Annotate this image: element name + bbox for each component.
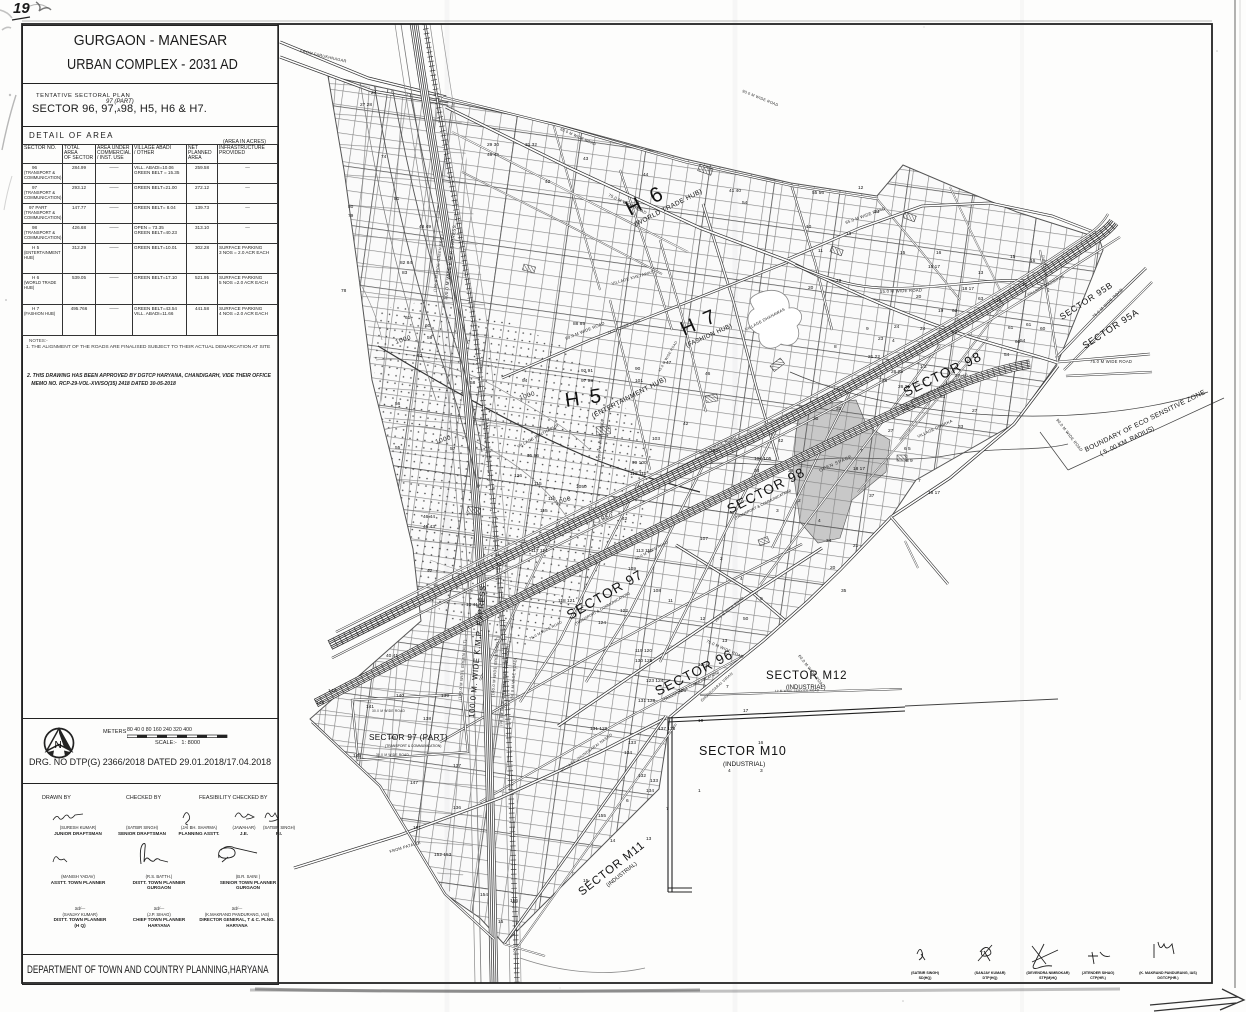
svg-text:151: 151 (413, 825, 421, 831)
svg-text:32: 32 (836, 406, 842, 412)
svg-text:3: 3 (776, 508, 779, 514)
svg-text:(DEVENDRA NIMBOKAR): (DEVENDRA NIMBOKAR) (1026, 971, 1070, 975)
svg-text:131 128: 131 128 (638, 698, 656, 704)
svg-text:DTP(HQ): DTP(HQ) (983, 976, 999, 980)
svg-text:118 121: 118 121 (558, 598, 575, 604)
svg-text:31: 31 (903, 406, 909, 412)
svg-text:54: 54 (742, 200, 748, 206)
svg-text:20: 20 (808, 285, 814, 291)
svg-text:23: 23 (878, 336, 884, 342)
svg-text:15: 15 (1010, 254, 1016, 260)
svg-text:4: 4 (818, 518, 821, 524)
svg-text:95 96: 95 96 (527, 453, 539, 459)
svg-text:17: 17 (743, 708, 749, 714)
svg-text:55: 55 (395, 445, 401, 451)
svg-text:35: 35 (841, 588, 847, 594)
svg-text:CTP(HR.): CTP(HR.) (1090, 976, 1107, 980)
svg-text:29 30: 29 30 (487, 142, 499, 148)
svg-text:13: 13 (846, 231, 852, 237)
svg-text:116: 116 (548, 496, 556, 502)
svg-text:6 5: 6 5 (904, 446, 911, 452)
svg-text:145: 145 (353, 753, 361, 759)
svg-text:143: 143 (316, 700, 324, 706)
svg-text:SECTOR M10: SECTOR M10 (699, 744, 787, 758)
svg-text:48 49: 48 49 (419, 224, 431, 230)
svg-text:16: 16 (758, 740, 764, 746)
svg-text:15: 15 (900, 250, 906, 256)
svg-text:16: 16 (936, 250, 942, 256)
svg-text:42: 42 (496, 562, 502, 568)
svg-text:10: 10 (806, 224, 812, 230)
svg-text:101: 101 (635, 378, 643, 384)
svg-text:10 41: 10 41 (466, 602, 478, 608)
svg-text:39: 39 (788, 468, 794, 474)
svg-text:18 17: 18 17 (853, 466, 865, 472)
svg-text:55 56: 55 56 (812, 190, 824, 196)
svg-text:7: 7 (726, 684, 729, 690)
svg-text:90: 90 (635, 366, 641, 372)
svg-text:12: 12 (698, 662, 704, 668)
svg-text:34: 34 (754, 468, 760, 474)
svg-text:28: 28 (882, 378, 888, 384)
svg-text:62: 62 (952, 308, 958, 314)
svg-text:147: 147 (410, 780, 418, 786)
svg-text:133: 133 (650, 778, 658, 784)
svg-text:(INDUSTRIAL): (INDUSTRIAL) (723, 761, 765, 768)
svg-text:57: 57 (450, 446, 456, 452)
svg-text:42: 42 (545, 179, 551, 185)
svg-text:1: 1 (698, 788, 701, 794)
svg-text:(SANJAY KUMAR): (SANJAY KUMAR) (975, 971, 1007, 975)
svg-text:18 17: 18 17 (928, 264, 940, 270)
svg-text:37: 37 (869, 493, 875, 499)
svg-text:80: 80 (348, 204, 354, 210)
svg-text:133: 133 (628, 740, 636, 746)
svg-text:16: 16 (1030, 258, 1036, 264)
svg-text:103: 103 (710, 448, 718, 454)
svg-text:40 41: 40 41 (386, 653, 398, 659)
svg-text:60: 60 (425, 323, 431, 329)
svg-text:7: 7 (666, 806, 669, 812)
svg-text:92 91: 92 91 (581, 368, 593, 374)
svg-text:4: 4 (892, 338, 895, 344)
svg-text:155: 155 (598, 813, 606, 819)
svg-text:46 45: 46 45 (487, 152, 499, 158)
svg-text:30.0 M WIDE ROAD: 30.0 M WIDE ROAD (376, 753, 409, 757)
svg-text:119 120: 119 120 (635, 648, 652, 654)
svg-text:27: 27 (972, 408, 978, 414)
svg-text:134: 134 (624, 750, 632, 756)
svg-text:N: N (55, 740, 62, 751)
svg-text:BOUNDARY OF ECO SENSITIVE ZONE: BOUNDARY OF ECO SENSITIVE ZONE (1084, 389, 1207, 454)
svg-text:14: 14 (874, 209, 880, 215)
svg-text:122: 122 (620, 608, 628, 614)
svg-text:42: 42 (622, 516, 628, 522)
svg-text:81: 81 (394, 196, 400, 202)
svg-text:78: 78 (341, 288, 347, 294)
svg-text:56: 56 (395, 401, 401, 407)
svg-text:34: 34 (826, 538, 832, 544)
svg-text:131 128: 131 128 (590, 726, 608, 732)
svg-text:106 105: 106 105 (754, 456, 772, 462)
svg-text:9: 9 (866, 326, 869, 332)
svg-text:61: 61 (1008, 325, 1014, 331)
svg-text:19: 19 (996, 298, 1002, 304)
svg-text:19: 19 (698, 718, 704, 724)
svg-text:8 9: 8 9 (906, 458, 913, 464)
svg-text:140: 140 (396, 693, 404, 699)
svg-text:DGTCP(HR.): DGTCP(HR.) (1157, 976, 1179, 980)
svg-text:154: 154 (480, 892, 488, 898)
svg-text:123 124: 123 124 (646, 678, 664, 684)
svg-text:27: 27 (955, 373, 961, 379)
svg-text:8: 8 (834, 344, 837, 350)
svg-text:99 100: 99 100 (632, 460, 647, 466)
svg-text:26 25: 26 25 (891, 369, 903, 375)
svg-text:STP(M)HQ: STP(M)HQ (1039, 976, 1057, 980)
svg-text:46: 46 (705, 371, 711, 377)
svg-text:88 89: 88 89 (573, 321, 585, 327)
svg-text:42: 42 (427, 568, 433, 574)
svg-text:15: 15 (583, 878, 589, 884)
svg-text:(TRANSPORT & COMMUNICATION): (TRANSPORT & COMMUNICATION) (385, 744, 441, 748)
svg-text:20: 20 (916, 294, 922, 300)
svg-text:21 22: 21 22 (868, 354, 880, 360)
svg-text:90.0 M WIDE ROAD: 90.0 M WIDE ROAD (1055, 418, 1084, 453)
svg-text:82 84: 82 84 (400, 260, 412, 266)
svg-text:50: 50 (743, 616, 749, 622)
svg-text:109: 109 (628, 566, 636, 572)
svg-text:(K. MAKRAND PANDURANG, IAS): (K. MAKRAND PANDURANG, IAS) (1139, 971, 1197, 975)
svg-text:58: 58 (470, 380, 476, 386)
svg-text:15: 15 (498, 919, 504, 925)
svg-text:137 135: 137 135 (658, 726, 676, 732)
svg-text:97 98: 97 98 (581, 378, 593, 384)
svg-text:54: 54 (1004, 352, 1010, 358)
svg-text:61: 61 (1026, 322, 1032, 328)
svg-text:4: 4 (923, 377, 926, 383)
svg-text:126: 126 (514, 473, 522, 479)
svg-text:SECTOR M12: SECTOR M12 (766, 670, 847, 682)
svg-text:117 114: 117 114 (531, 548, 548, 554)
svg-text:(JITENDER SIHAG): (JITENDER SIHAG) (1082, 971, 1115, 975)
svg-text:3: 3 (760, 768, 763, 774)
svg-text:33: 33 (958, 424, 964, 430)
svg-text:7: 7 (860, 448, 863, 454)
svg-text:138: 138 (423, 716, 431, 722)
svg-text:62: 62 (417, 353, 423, 359)
svg-text:27 28: 27 28 (360, 102, 372, 108)
svg-text:30: 30 (813, 416, 819, 422)
svg-text:6: 6 (626, 798, 629, 804)
svg-text:11: 11 (668, 598, 673, 604)
svg-text:SD(HQ): SD(HQ) (919, 976, 933, 980)
svg-text:44: 44 (643, 172, 649, 178)
svg-text:24: 24 (894, 324, 900, 330)
svg-text:62: 62 (952, 329, 958, 335)
svg-text:14: 14 (610, 838, 616, 844)
svg-text:63: 63 (978, 296, 984, 302)
svg-text:61: 61 (405, 315, 411, 321)
svg-text:7: 7 (918, 478, 921, 484)
svg-text:79: 79 (348, 213, 354, 219)
svg-text:20: 20 (830, 565, 836, 571)
svg-text:4: 4 (728, 768, 731, 774)
svg-text:12 M WIDE SERVICE ROAD: 12 M WIDE SERVICE ROAD (775, 688, 820, 693)
svg-text:103: 103 (652, 436, 660, 442)
svg-text:31 32: 31 32 (525, 142, 537, 148)
svg-text:24: 24 (920, 326, 926, 332)
svg-text:24: 24 (371, 90, 377, 96)
svg-text:SECTOR 95A: SECTOR 95A (1081, 307, 1141, 351)
svg-text:42: 42 (683, 421, 689, 427)
svg-text:1 2: 1 2 (920, 364, 927, 370)
svg-text:115: 115 (534, 481, 542, 487)
svg-text:12: 12 (858, 185, 864, 191)
svg-text:2: 2 (720, 556, 723, 562)
svg-text:21: 21 (853, 543, 859, 549)
svg-text:26 25: 26 25 (898, 384, 910, 390)
svg-text:30.0 M WIDE ROAD: 30.0 M WIDE ROAD (372, 709, 405, 713)
svg-text:83: 83 (402, 270, 408, 276)
svg-text:130 129: 130 129 (635, 658, 653, 664)
svg-text:18 17: 18 17 (962, 286, 974, 292)
svg-text:27: 27 (888, 428, 894, 434)
svg-text:(SATBIR SINGH): (SATBIR SINGH) (911, 971, 940, 975)
svg-text:13: 13 (722, 638, 728, 644)
svg-text:156: 156 (510, 898, 518, 904)
svg-text:46 44: 46 44 (423, 514, 435, 520)
svg-text:108: 108 (653, 588, 661, 594)
svg-text:2: 2 (798, 498, 801, 504)
svg-text:31: 31 (940, 394, 946, 400)
svg-text:94: 94 (522, 378, 528, 384)
svg-text:136: 136 (453, 805, 461, 811)
svg-text:107: 107 (700, 536, 708, 542)
svg-text:59: 59 (427, 335, 433, 341)
svg-text:90.0 M WIDE ROAD: 90.0 M WIDE ROAD (742, 89, 779, 107)
svg-text:124: 124 (598, 620, 606, 626)
svg-text:47: 47 (666, 360, 672, 366)
svg-text:142: 142 (328, 688, 336, 694)
svg-text:13: 13 (978, 270, 984, 276)
svg-text:126: 126 (678, 688, 686, 694)
svg-text:60: 60 (1040, 326, 1046, 332)
svg-text:113 110: 113 110 (636, 548, 653, 554)
svg-text:13: 13 (646, 836, 652, 842)
svg-text:42: 42 (778, 438, 784, 444)
svg-text:43: 43 (583, 156, 589, 162)
svg-text:137: 137 (453, 763, 461, 769)
svg-text:112 111: 112 111 (630, 471, 647, 477)
svg-text:132: 132 (638, 773, 646, 779)
svg-text:134: 134 (646, 788, 654, 794)
svg-text:1050: 1050 (576, 484, 587, 490)
svg-text:45 43: 45 43 (423, 524, 435, 530)
svg-text:146: 146 (388, 735, 396, 741)
svg-text:4: 4 (740, 576, 743, 582)
svg-text:19: 19 (836, 278, 842, 284)
svg-text:115: 115 (540, 508, 548, 514)
svg-text:11: 11 (818, 248, 823, 254)
svg-text:74: 74 (381, 154, 387, 160)
svg-text:12: 12 (700, 616, 706, 622)
svg-text:SECTOR 97 (PART): SECTOR 97 (PART) (369, 733, 448, 742)
svg-text:9: 9 (760, 596, 763, 602)
svg-text:19: 19 (938, 308, 944, 314)
svg-text:141: 141 (366, 704, 374, 710)
svg-text:18 17: 18 17 (928, 490, 940, 496)
svg-text:75.0 M WIDE ROAD: 75.0 M WIDE ROAD (1090, 359, 1132, 364)
